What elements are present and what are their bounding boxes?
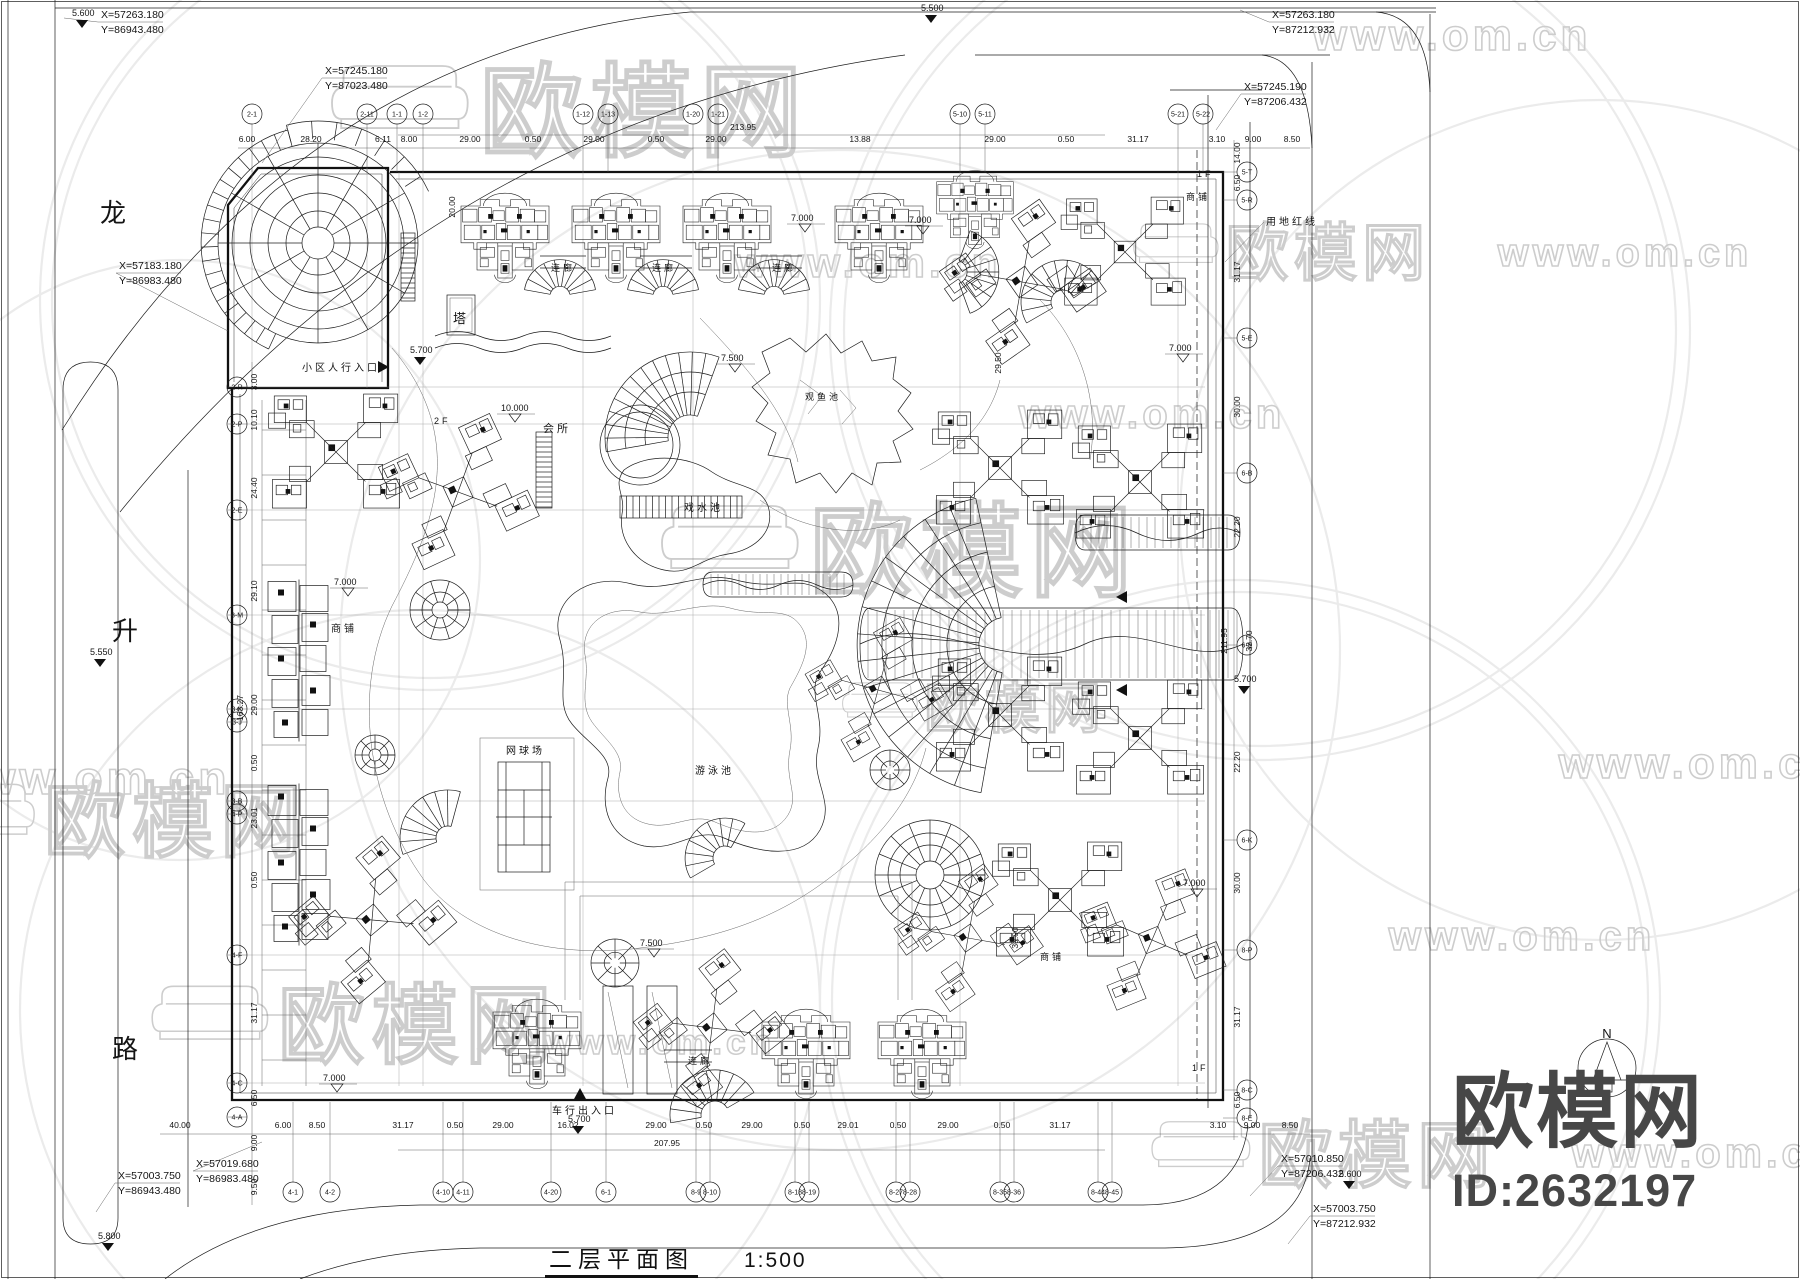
dim-label: 31.17 [1232, 261, 1242, 283]
area-label: 用地红线 [1266, 215, 1318, 228]
area-label: 会所 [543, 422, 571, 435]
watermark-brand: 欧模网 [152, 979, 558, 1075]
grid-bubble-label: 8-36 [1007, 1190, 1021, 1197]
elevation-marker-open [729, 364, 741, 372]
coordinate-label: Y=86943.480 [118, 1185, 181, 1197]
coordinate-label: X=57263.180 [1272, 9, 1335, 21]
sofa-icon [1134, 224, 1218, 263]
grid-bubble-label: 8-10 [703, 1190, 717, 1197]
grid-bubble-label: 6-K [1242, 838, 1253, 845]
dim-label: 0.50 [794, 1120, 811, 1130]
elevation-label: 5.700 [410, 345, 433, 355]
dim-label: 31.17 [392, 1120, 414, 1130]
building-footprint [762, 1009, 850, 1098]
grid-bubble-label: 3-M [231, 613, 243, 620]
grid-bubble-label: 4-P [232, 812, 243, 819]
elevation-marker-solid [94, 659, 106, 667]
grid-bubble-label: 8-28 [903, 1190, 917, 1197]
grid-bubble-label: 8-45 [1105, 1190, 1119, 1197]
dim-label: 31.17 [249, 1002, 259, 1024]
dim-label: 23.01 [249, 807, 259, 829]
elevation-label: 7.500 [640, 938, 663, 948]
dim-label: 6.00 [275, 1120, 292, 1130]
dim-label: 0.50 [249, 754, 259, 771]
dim-label: 3.00 [249, 373, 259, 390]
coordinate-label: Y=86983.480 [119, 275, 182, 287]
area-label: 2F [434, 416, 451, 426]
dim-label: 6.00 [239, 134, 256, 144]
dim-label: 29.01 [837, 1120, 859, 1130]
dim-label: 28.20 [300, 134, 322, 144]
grid-bubble-label: 4-F [232, 953, 243, 960]
building-footprint [993, 842, 1124, 956]
coordinate-label: Y=87206.432 [1244, 96, 1307, 108]
watermark-url-text: www.om.cn [1558, 739, 1800, 788]
grid-bubble-label: 5-E [1242, 336, 1253, 343]
grid-bubble-label: 1-13 [601, 112, 615, 119]
dim-label: 8.50 [1282, 1120, 1299, 1130]
dim-label: 30.00 [1232, 872, 1242, 894]
elevation-label: 7.000 [334, 577, 357, 587]
area-label: 商铺 [1040, 951, 1064, 962]
coordinate-label: Y=86983.480 [196, 1173, 259, 1185]
coordinate-label: Y=87212.932 [1313, 1218, 1376, 1230]
road-name-char: 升 [112, 616, 138, 646]
dim-label: 29.10 [249, 580, 259, 602]
brand-logo-id: ID:2632197 [1452, 1168, 1704, 1213]
area-label: 商铺 [1186, 191, 1210, 202]
watermark-url-text: www.om.cn [1388, 912, 1656, 959]
grid-bubble-label: 5-22 [1196, 112, 1210, 119]
elevation-marker-solid [102, 1243, 114, 1251]
dim-label: 3.10 [1210, 1120, 1227, 1130]
elevation-label: 5.800 [98, 1231, 121, 1241]
dim-label: 32.70 [1244, 630, 1254, 652]
elevation-label: 7.500 [721, 353, 744, 363]
sofa-icon [662, 506, 798, 568]
elevation-marker-solid [76, 20, 88, 28]
building-footprint [878, 1009, 966, 1098]
coordinate-label: Y=87023.480 [325, 80, 388, 92]
grid-bubble-label: 8-P [1242, 948, 1253, 955]
building-footprint [268, 580, 330, 742]
elevation-label: 5.500 [921, 3, 944, 13]
building-footprint [1074, 868, 1226, 1011]
building-footprint [572, 193, 660, 282]
dim-label: 40.00 [169, 1120, 191, 1130]
grid-bubble-label: 2-P [232, 422, 243, 429]
dim-label: 9.00 [1245, 134, 1262, 144]
dim-label: 8.50 [1284, 134, 1301, 144]
area-label: 连廊 [772, 262, 796, 273]
dim-label: 0.50 [447, 1120, 464, 1130]
grid-bubble-label: 4-A [232, 1115, 243, 1122]
dim-label: 163.27 [235, 695, 245, 721]
grid-bubble-label: 6-1 [601, 1190, 611, 1197]
building-footprint [269, 394, 400, 508]
grid-bubble-label: 5-T [1242, 170, 1253, 177]
dim-label: 6.50 [1232, 1091, 1242, 1108]
building-footprint [937, 171, 1014, 249]
dim-label: 213.95 [730, 122, 756, 132]
grid-bubble-label: 5-21 [1171, 112, 1185, 119]
grid-bubble-label: 6-B [1242, 471, 1253, 478]
brand-logo-text: 欧模网 [1452, 1072, 1704, 1154]
watermark-url-text: www.om.cn [1497, 231, 1752, 275]
watermark-url-text: www.om.cn [1018, 390, 1286, 437]
area-label: 观鱼池 [805, 391, 841, 402]
grid-bubble-label: 2-R [231, 385, 242, 392]
watermark-brand-text: 欧模网 [810, 496, 1140, 610]
direction-arrow [574, 1088, 586, 1099]
grid-bubble-label: 4-2 [325, 1190, 335, 1197]
dim-label: 8.00 [401, 134, 418, 144]
watermark-url-text: www.om.cn [0, 752, 230, 804]
drawing-scale: 1:500 [744, 1249, 807, 1272]
grid-bubble-label: 4-10 [436, 1190, 450, 1197]
dim-label: 6.50 [1232, 174, 1242, 191]
watermark-brand-text: 欧模网 [1226, 219, 1431, 289]
dim-label: 13.88 [849, 134, 871, 144]
dim-label: 31.17 [1049, 1120, 1071, 1130]
dim-label: 24.40 [249, 477, 259, 499]
grid-bubble-label: 8-9 [691, 1190, 701, 1197]
grid-bubble-label: 8-19 [802, 1190, 816, 1197]
elevation-label: 7.000 [791, 213, 814, 223]
dim-label: 29.50 [993, 352, 1003, 374]
dim-label: 29.00 [492, 1120, 514, 1130]
watermark-layer: 欧模网欧模网欧模网欧模网欧模网欧模网欧模网www.om.cnwww.om.cnw… [0, 11, 1800, 1197]
dim-label: 207.95 [654, 1138, 680, 1148]
dim-label: 0.50 [890, 1120, 907, 1130]
area-label: 商铺 [331, 622, 357, 635]
grid-bubble-label: 4-20 [544, 1190, 558, 1197]
dim-label: 0.50 [994, 1120, 1011, 1130]
coordinate-label: X=57019.680 [196, 1158, 259, 1170]
dim-label: 29.00 [705, 134, 727, 144]
dim-label: 31.17 [1127, 134, 1149, 144]
watermark-url-text: www.om.cn [1312, 11, 1592, 60]
dim-label: 6.50 [249, 1089, 259, 1106]
grid-bubble-label: 1-1 [392, 112, 402, 119]
elevation-marker-solid [572, 1126, 584, 1134]
dim-label: 0.50 [696, 1120, 713, 1130]
area-label: 车行出入口 [552, 1104, 617, 1117]
north-label: N [1602, 1026, 1611, 1041]
road-name-char: 龙 [100, 198, 126, 228]
coordinate-label: Y=87206.432 [1281, 1168, 1344, 1180]
dim-label: 0.50 [525, 134, 542, 144]
grid-bubble-label: 2-11 [360, 112, 374, 119]
dim-label: 29.00 [984, 134, 1006, 144]
area-label: 连廊 [652, 262, 676, 273]
dim-label: 29.00 [249, 694, 259, 716]
watermark-brand-text: 欧模网 [480, 56, 810, 170]
area-label: 连廊 [551, 262, 575, 273]
coordinate-label: X=57003.750 [118, 1170, 181, 1182]
dim-label: 0.50 [1058, 134, 1075, 144]
dim-label: 29.00 [741, 1120, 763, 1130]
coordinate-label: X=57263.180 [101, 9, 164, 21]
grid-bubble-label: 4-C [231, 1081, 242, 1088]
dim-label: 9.00 [1244, 1120, 1261, 1130]
brand-logo: 欧模网 ID:2632197 [1452, 1072, 1704, 1213]
grid-bubble-label: 1-20 [686, 112, 700, 119]
dim-label: 10.10 [249, 409, 259, 431]
grid-bubble-label: 1-2 [418, 112, 428, 119]
dim-label: 31.17 [1232, 1006, 1242, 1028]
grid-bubble-label: 1-12 [576, 112, 590, 119]
direction-arrow [1116, 684, 1127, 696]
watermark-brand-text: 欧模网 [278, 979, 558, 1075]
elevation-marker-open [331, 1084, 343, 1092]
grid-bubble-label: 8-C [1241, 1088, 1252, 1095]
coordinate-label: X=57245.190 [1244, 81, 1307, 93]
grid-bubble-label: 2-1 [247, 112, 257, 119]
area-label: 1F [1197, 169, 1214, 179]
watermark-brand: 欧模网 [332, 56, 810, 170]
area-label: 塔 [453, 311, 469, 326]
dim-label: 20.00 [447, 196, 457, 218]
dim-label: 3.10 [1209, 134, 1226, 144]
elevation-label: 7.000 [1183, 878, 1206, 888]
drawing-title-block: 二层平面图1:500 [545, 1240, 807, 1274]
grid-bubble-label: 4-11 [456, 1190, 470, 1197]
building-layer [268, 171, 1226, 1110]
coordinate-label: Y=87212.932 [1272, 24, 1335, 36]
area-label: 1F [1192, 1063, 1209, 1073]
dim-label: 22.20 [1232, 751, 1242, 773]
dim-label: 29.00 [645, 1120, 667, 1130]
grid-bubble-label: 5-10 [953, 112, 967, 119]
dim-label: 14.00 [1232, 142, 1242, 164]
dim-label: 0.50 [249, 871, 259, 888]
elevation-label: 5.600 [1339, 1169, 1362, 1179]
elevation-label: 5.550 [90, 647, 113, 657]
road-name-char: 路 [112, 1034, 138, 1064]
grid-bubble-label: 1-21 [711, 112, 725, 119]
elevation-label: 7.000 [909, 215, 932, 225]
elevation-label: 10.000 [501, 403, 529, 413]
elevation-marker-open [648, 949, 660, 957]
dim-label: 29.00 [583, 134, 605, 144]
area-label: 小区人行入口 [302, 361, 380, 374]
coordinate-label: X=57010.850 [1281, 1153, 1344, 1165]
elevation-label: 5.600 [72, 8, 95, 18]
coordinate-label: Y=86943.480 [101, 24, 164, 36]
elevation-marker-solid [1238, 686, 1250, 694]
area-label: 游泳池 [695, 764, 734, 777]
dim-label: 0.50 [648, 134, 665, 144]
building-footprint [1061, 197, 1185, 305]
grid-bubble-label: 5-11 [978, 112, 992, 119]
elevation-marker-solid [925, 15, 937, 23]
coordinate-label: X=57003.750 [1313, 1203, 1376, 1215]
elevation-marker-solid [414, 357, 426, 365]
elevation-label: 7.000 [323, 1073, 346, 1083]
annotation-layer: X=57263.180Y=86943.480X=57245.180Y=87023… [64, 3, 1376, 1251]
dim-label: 29.00 [937, 1120, 959, 1130]
area-label: 连廊 [688, 1055, 712, 1066]
dim-label: 29.00 [459, 134, 481, 144]
coordinate-label: X=57183.180 [119, 260, 182, 272]
elevation-label: 7.000 [1169, 343, 1192, 353]
elevation-label: 5.700 [1234, 674, 1257, 684]
area-label: 戏水池 [684, 501, 723, 514]
dim-label: 9.00 [249, 1134, 259, 1151]
building-footprint [372, 413, 539, 572]
dim-label: 8.50 [309, 1120, 326, 1130]
drawing-title: 二层平面图 [545, 1246, 698, 1278]
elevation-marker-open [1177, 354, 1189, 362]
grid-bubble-label: 2-E [232, 508, 243, 515]
sofa-icon [1152, 1122, 1250, 1167]
elevation-marker-open [509, 414, 521, 422]
area-label: 网球场 [506, 744, 545, 757]
dim-label: 30.00 [1232, 396, 1242, 418]
cad-sheet: 欧模网欧模网欧模网欧模网欧模网欧模网欧模网www.om.cnwww.om.cnw… [0, 0, 1800, 1279]
coordinate-label: X=57245.180 [325, 65, 388, 77]
grid-bubble-label: 4-1 [288, 1190, 298, 1197]
grid-bubble-label: 5-R [1241, 198, 1252, 205]
